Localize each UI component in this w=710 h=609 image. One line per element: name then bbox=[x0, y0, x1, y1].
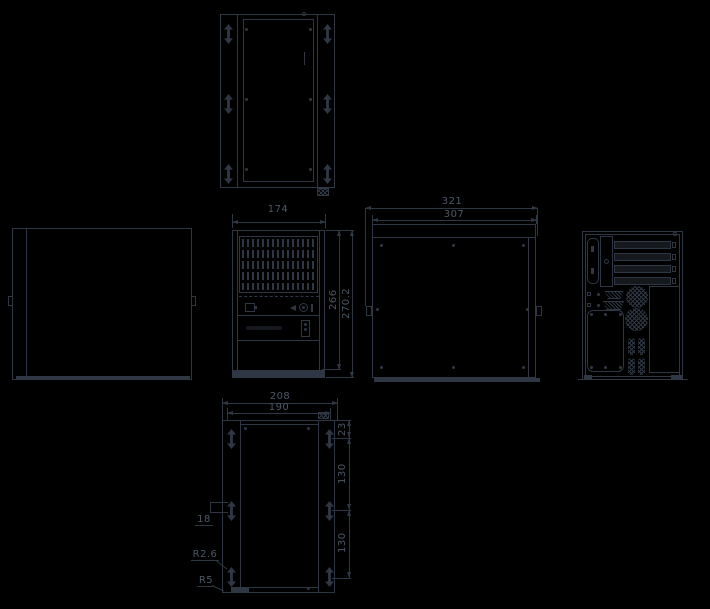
fan-grille-icon bbox=[625, 308, 648, 331]
dsub-connector-icon bbox=[605, 291, 623, 299]
extension-line bbox=[210, 502, 228, 503]
expansion-slot-cover bbox=[614, 253, 671, 261]
reset-button-dot bbox=[302, 306, 305, 309]
mount-foot-icon bbox=[317, 188, 329, 196]
front-right-wall-line bbox=[319, 230, 320, 378]
power-button-notch bbox=[255, 306, 257, 309]
rear-connector-icon bbox=[638, 358, 645, 375]
dim-line-depth bbox=[372, 220, 537, 221]
side-view bbox=[368, 222, 544, 384]
rear-connector-icon bbox=[628, 358, 635, 375]
screw-hole-dot bbox=[376, 308, 379, 311]
dim-line-front-height bbox=[339, 230, 340, 370]
screw-hole-dot bbox=[604, 313, 607, 316]
dsub-connector-icon bbox=[603, 301, 624, 310]
dim-front-height-total: 270.2 bbox=[341, 280, 352, 326]
top-view-right-flange-line bbox=[317, 14, 318, 188]
screw-hole-dot bbox=[597, 293, 600, 296]
edge-tab-icon bbox=[8, 296, 13, 306]
screw-hole-dot bbox=[619, 313, 622, 316]
led-indicator-icon bbox=[311, 304, 313, 312]
expansion-slot-cover bbox=[614, 265, 671, 273]
extension-line bbox=[537, 208, 538, 236]
top-view bbox=[220, 14, 335, 196]
left-view-outline bbox=[12, 228, 192, 380]
bottom-plate-panel bbox=[240, 424, 319, 588]
io-shield-slot bbox=[591, 268, 594, 274]
extension-line bbox=[210, 512, 228, 513]
psu-bay bbox=[649, 286, 680, 373]
slot-cover-tab bbox=[672, 266, 676, 272]
dim-bottom-offset-top: 23 bbox=[337, 421, 348, 437]
screw-hole-dot bbox=[619, 366, 622, 369]
screw-hole-dot bbox=[673, 232, 677, 236]
vent-grille-pattern bbox=[242, 239, 315, 290]
slot-cover-tab bbox=[672, 242, 676, 248]
vent-grille bbox=[239, 236, 318, 293]
rear-connector-icon bbox=[628, 338, 635, 355]
extension-line bbox=[332, 578, 351, 579]
rear-connector-icon bbox=[638, 338, 645, 355]
dim-front-height: 266 bbox=[328, 282, 339, 318]
dim-bottom-width: 190 bbox=[255, 402, 303, 413]
dim-line-offset-top bbox=[349, 420, 350, 438]
dim-bottom-pitch-lower: 130 bbox=[337, 528, 348, 558]
rear-view bbox=[578, 228, 698, 384]
front-view bbox=[232, 230, 325, 378]
dim-front-width: 174 bbox=[254, 204, 302, 215]
dim-line-front-width bbox=[232, 222, 326, 223]
bezel-seam-line bbox=[239, 296, 319, 297]
chassis-foot bbox=[584, 375, 592, 379]
top-view-left-flange-line bbox=[237, 14, 238, 188]
expansion-slot-cover bbox=[614, 241, 671, 249]
dim-depth: 307 bbox=[430, 209, 478, 220]
screw-hole-dot bbox=[590, 366, 593, 369]
top-vent-tick bbox=[304, 52, 305, 65]
edge-tab-icon bbox=[366, 306, 372, 316]
screw-hole-dot bbox=[309, 98, 312, 101]
dim-radius-inner: R2.6 bbox=[191, 549, 219, 561]
left-view-flange-line bbox=[26, 228, 27, 380]
screw-hole-dot bbox=[597, 304, 600, 307]
dim-depth-total: 321 bbox=[428, 196, 476, 207]
io-shield-slot bbox=[591, 246, 594, 252]
bracket-screw-hole bbox=[604, 259, 609, 264]
front-left-wall-line bbox=[237, 230, 238, 378]
front-panel-line bbox=[238, 315, 319, 316]
dim-line-pitch-upper bbox=[349, 438, 350, 510]
dim-line-pitch-lower bbox=[349, 510, 350, 578]
slot-cover-tab bbox=[672, 278, 676, 284]
edge-tab-icon bbox=[536, 306, 542, 316]
screw-hole-dot bbox=[590, 313, 593, 316]
screw-hole-dot bbox=[307, 427, 310, 430]
top-view-cover-panel bbox=[243, 19, 314, 182]
power-button-icon bbox=[245, 303, 255, 312]
screw-hole-dot bbox=[380, 366, 383, 369]
screw-hole-dot bbox=[522, 366, 525, 369]
screw-hole-dot bbox=[522, 244, 525, 247]
fan-grille-icon bbox=[626, 286, 648, 308]
psu-cutout-panel bbox=[587, 310, 624, 372]
screw-hole-dot bbox=[526, 308, 529, 311]
dim-line-bottom-width bbox=[227, 413, 331, 414]
dim-bottom-slot-width: 18 bbox=[195, 514, 213, 526]
technical-drawing-canvas: 174 266 270.2 321 307 bbox=[0, 0, 710, 609]
front-port-pin bbox=[304, 328, 307, 331]
side-top-strip bbox=[372, 224, 536, 238]
rear-base-line bbox=[578, 379, 688, 380]
punch-hole-square bbox=[587, 303, 591, 307]
screw-hole-dot bbox=[452, 244, 455, 247]
side-base-strip bbox=[374, 378, 540, 382]
screw-hole-dot bbox=[309, 28, 312, 31]
edge-tab-icon bbox=[191, 296, 196, 306]
chassis-foot bbox=[671, 375, 683, 379]
screw-hole-dot bbox=[604, 366, 607, 369]
front-base-strip bbox=[233, 370, 324, 377]
screw-hole-dot bbox=[245, 168, 248, 171]
expansion-slot-cover bbox=[614, 277, 671, 285]
screw-hole-dot bbox=[245, 28, 248, 31]
io-shield-plate bbox=[587, 238, 599, 284]
dim-bottom-pitch-upper: 130 bbox=[337, 459, 348, 489]
extension-line bbox=[210, 502, 211, 513]
screw-hole-dot bbox=[452, 366, 455, 369]
left-view-base-strip bbox=[16, 376, 190, 379]
screw-hole-dot bbox=[307, 587, 310, 590]
screw-hole-dot bbox=[245, 98, 248, 101]
screw-hole-dot bbox=[309, 168, 312, 171]
front-port-pin bbox=[304, 323, 307, 326]
dim-bottom-width-total: 208 bbox=[256, 391, 304, 402]
bottom-view bbox=[222, 420, 335, 593]
top-thumbscrew-icon bbox=[302, 12, 306, 16]
punch-hole-square bbox=[587, 292, 591, 296]
screw-hole-dot bbox=[244, 427, 247, 430]
left-side-view bbox=[12, 228, 196, 380]
eject-arrow-icon bbox=[290, 305, 296, 311]
extension-line bbox=[365, 208, 366, 306]
brand-logo bbox=[246, 326, 282, 330]
side-view-outline bbox=[372, 237, 536, 378]
slot-cover-tab bbox=[672, 254, 676, 260]
front-panel-line bbox=[238, 340, 319, 341]
dim-line-front-height-total bbox=[352, 230, 353, 378]
chassis-foot bbox=[231, 587, 249, 592]
screw-hole-dot bbox=[380, 244, 383, 247]
